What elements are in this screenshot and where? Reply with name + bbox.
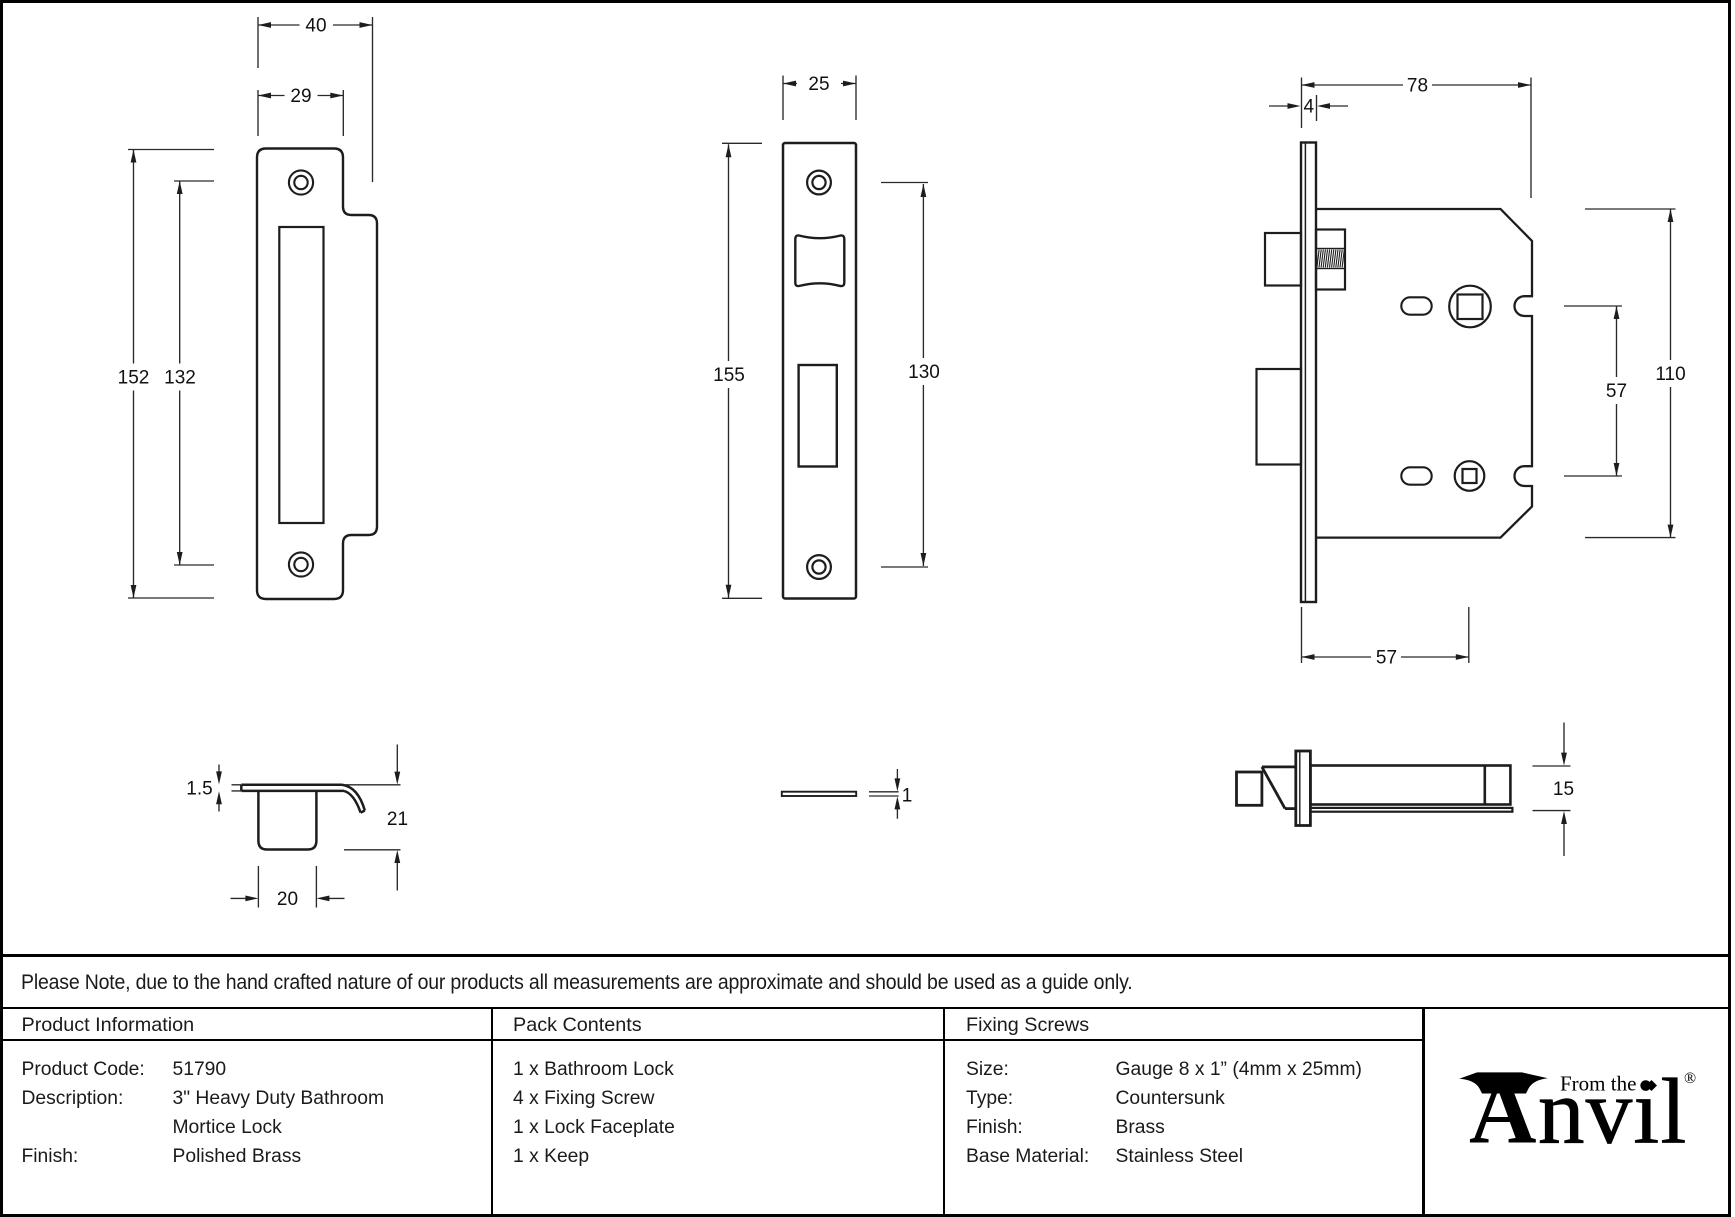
svg-text:132: 132 <box>164 368 196 389</box>
svg-text:1.5: 1.5 <box>186 779 212 800</box>
svg-text:25: 25 <box>808 74 829 95</box>
svg-text:130: 130 <box>908 362 940 383</box>
svg-text:110: 110 <box>1655 364 1685 385</box>
svg-text:155: 155 <box>713 365 745 386</box>
svg-text:1: 1 <box>902 786 913 807</box>
svg-text:21: 21 <box>387 809 408 830</box>
svg-text:20: 20 <box>277 889 298 910</box>
svg-text:57: 57 <box>1606 381 1627 402</box>
svg-text:15: 15 <box>1553 779 1574 800</box>
svg-text:4: 4 <box>1304 97 1315 118</box>
svg-text:From the: From the <box>1560 1072 1636 1096</box>
svg-text:29: 29 <box>290 86 311 107</box>
svg-text:40: 40 <box>305 16 326 37</box>
svg-text:78: 78 <box>1407 76 1428 97</box>
svg-text:®: ® <box>1684 1070 1696 1087</box>
svg-text:57: 57 <box>1376 648 1397 669</box>
svg-text:152: 152 <box>118 368 150 389</box>
